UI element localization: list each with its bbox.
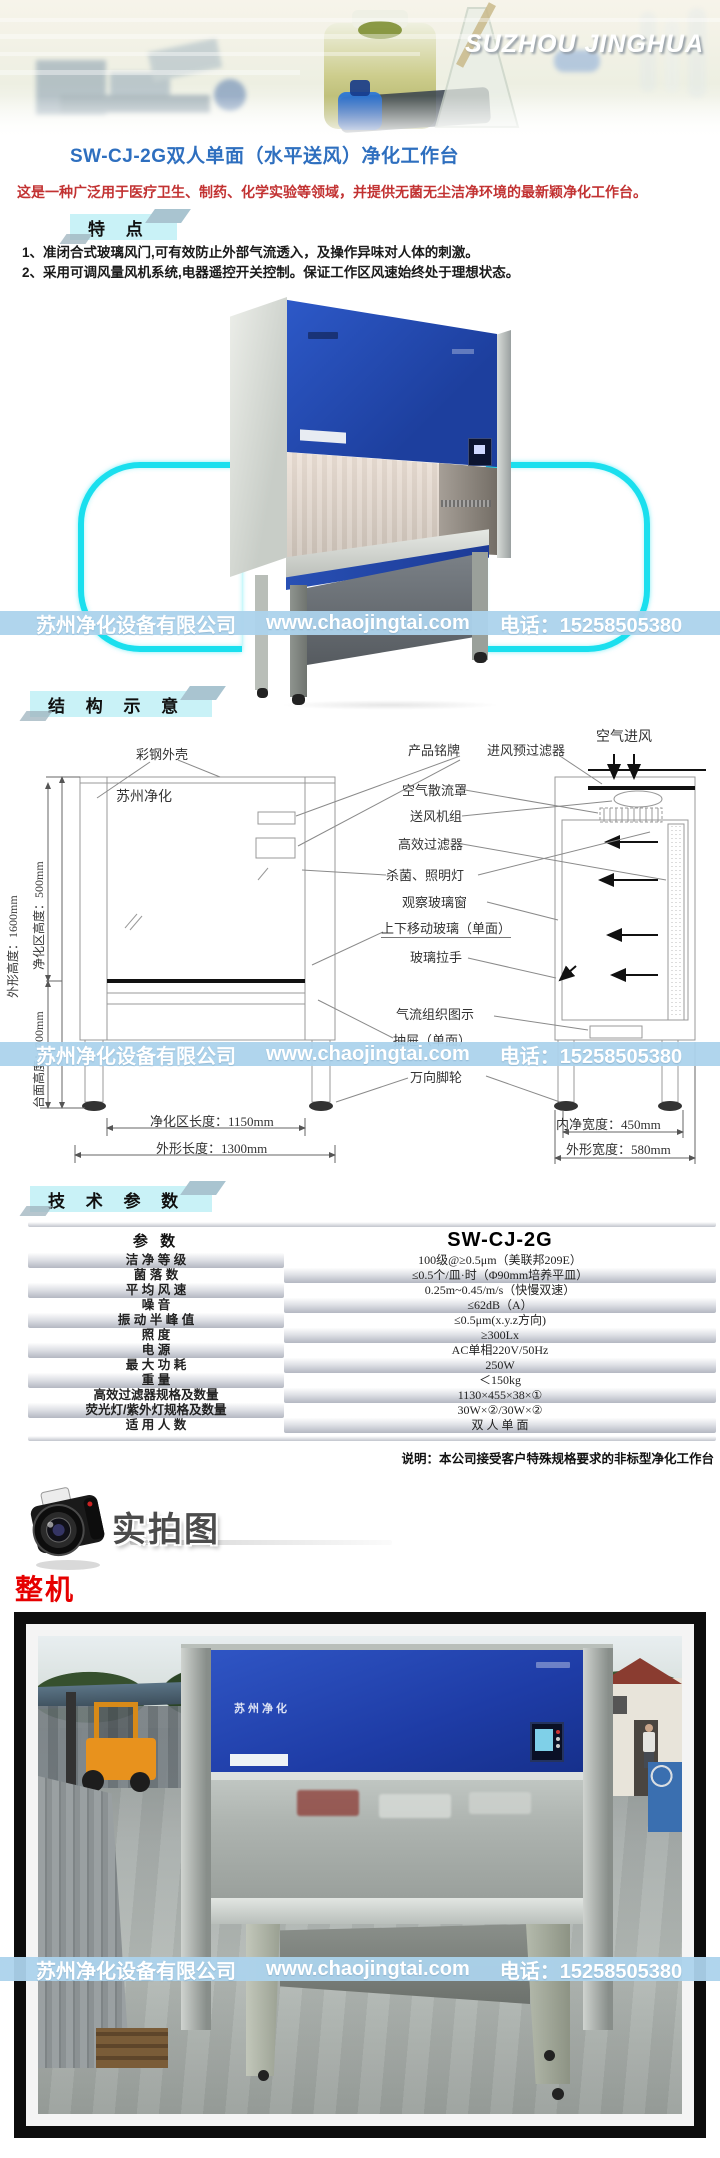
row-value: ≤62dB（A） (284, 1298, 716, 1313)
header-banner: SUZHOU JINGHUA (0, 0, 720, 140)
column-header-parameter: 参 数 (28, 1230, 284, 1251)
table-row: 菌 落 数≤0.5个/皿·时（Φ90mm培养平皿） (28, 1268, 716, 1283)
row-label: 洁 净 等 级 (28, 1253, 284, 1268)
dim-clean-height: 净化区高度：500mm (30, 861, 47, 970)
bench-left-panel (230, 297, 287, 577)
label-hepa-filter: 高效过滤器 (398, 834, 463, 853)
bench-leg-right (472, 552, 488, 660)
row-label: 照 度 (28, 1328, 284, 1343)
label-glass-handle: 玻璃拉手 (410, 947, 462, 966)
heading-accent-right (180, 686, 226, 700)
bench-control-panel (468, 438, 492, 466)
watermark-phone: 电话：15258505380 (500, 609, 682, 638)
row-label: 适 用 人 数 (28, 1418, 284, 1433)
product-description: 这是一种广泛用于医疗卫生、制药、化学实验等领域，并提供无菌无尘洁净环境的最新颖净… (17, 182, 709, 202)
control-screen (474, 445, 485, 454)
bench2-control-panel (530, 1722, 564, 1762)
row-value: 100级@≥0.5μm（美联邦209E） (284, 1253, 716, 1268)
table-bottom-band (28, 1436, 716, 1441)
row-value: ≤0.5μm(x.y.z方向) (284, 1313, 716, 1328)
table-row: 高效过滤器规格及数量1130×455×38×① (28, 1388, 716, 1403)
bench2-caster-right-upper (544, 2050, 555, 2061)
pipe-coils (648, 1762, 682, 1832)
label-blower: 送风机组 (410, 806, 462, 825)
table-header-row: 参 数 SW-CJ-2G (28, 1227, 716, 1253)
features-heading: 特 点 (70, 214, 177, 240)
label-prefilter: 进风预过滤器 (487, 740, 565, 759)
real-photo-frame: 苏州净化 (14, 1612, 706, 2138)
watermark-website: www.chaojingtai.com (266, 1958, 470, 1981)
bench-perforated-strip (441, 500, 491, 507)
row-label: 荧光灯/紫外灯规格及数量 (28, 1403, 284, 1418)
bench2-model-mark (536, 1662, 570, 1668)
row-label: 菌 落 数 (28, 1268, 284, 1283)
real-photo: 苏州净化 (38, 1636, 682, 2114)
bench2-brand-mark: 苏州净化 (234, 1700, 290, 1716)
row-label: 最 大 功 耗 (28, 1358, 284, 1373)
label-air-intake: 空气进风 (596, 726, 652, 746)
table-row: 重 量＜150kg (28, 1373, 716, 1388)
bench-leg-front-left (290, 585, 307, 697)
bench2-work-deck (211, 1898, 583, 1924)
column-header-model: SW-CJ-2G (284, 1229, 716, 1252)
row-label: 振 动 半 峰 值 (28, 1313, 284, 1328)
table-row: 振 动 半 峰 值≤0.5μm(x.y.z方向) (28, 1313, 716, 1328)
row-value: ≥300Lx (284, 1328, 716, 1343)
page-title: SW-CJ-2G双人单面（水平送风）净化工作台 (70, 141, 459, 168)
row-value: 0.25m~0.45/m/s（快慢双速） (284, 1283, 716, 1298)
watermark-bar: 苏州净化设备有限公司 www.chaojingtai.com 电话：152585… (0, 611, 720, 635)
row-value: 双 人 单 面 (284, 1418, 716, 1433)
wood-pallet (96, 2028, 168, 2068)
label-color-steel-shell: 彩钢外壳 (136, 744, 188, 763)
table-row: 平 均 风 速0.25m~0.45/m/s（快慢双速） (28, 1283, 716, 1298)
forklift-wheel-rear (130, 1772, 150, 1792)
table-row: 洁 净 等 级100级@≥0.5μm（美联邦209E） (28, 1253, 716, 1268)
product-page: SUZHOU JINGHUA SW-CJ-2G双人单面（水平送风）净化工作台 这… (0, 0, 720, 2158)
dim-overall-length: 外形长度：1300mm (156, 1138, 267, 1157)
bench2-caster-left (258, 2070, 269, 2081)
heading-accent-right (145, 209, 191, 223)
structure-diagram: 彩钢外壳 苏州净化 产品铭牌 进风预过滤器 空气进风 空气散流罩 送风机组 高效… (0, 720, 720, 1200)
specs-heading-text: 技 术 参 数 (48, 1187, 186, 1212)
row-value: ＜150kg (284, 1373, 716, 1388)
bench-logo-mark (308, 332, 338, 339)
row-label: 电 源 (28, 1343, 284, 1358)
specs-note: 说明：本公司接受客户特殊规格要求的非标型净化工作台 (28, 1448, 716, 1467)
table-row: 荧光灯/紫外灯规格及数量30W×②/30W×② (28, 1403, 716, 1418)
table-row: 电 源AC单相220V/50Hz (28, 1343, 716, 1358)
row-value: 250W (284, 1358, 716, 1373)
watermark-company: 苏州净化设备有限公司 (36, 1040, 236, 1069)
label-airflow-pattern: 气流组织图示 (396, 1004, 474, 1023)
feature-item-1: 1、准闭合式玻璃风门,可有效防止外部气流透入，及操作异味对人体的刺激。 (22, 241, 712, 261)
bench-model-mark (452, 349, 474, 354)
label-lamp: 杀菌、照明灯 (386, 865, 464, 884)
heading-accent-left (19, 1206, 52, 1216)
row-value: 1130×455×38×① (284, 1388, 716, 1403)
row-label: 高效过滤器规格及数量 (28, 1388, 284, 1403)
watermark-phone: 电话：15258505380 (500, 1040, 682, 1069)
dim-inner-width: 内净宽度：450mm (556, 1114, 661, 1133)
table-row: 照 度≥300Lx (28, 1328, 716, 1343)
caster-left-back (257, 688, 268, 698)
watermark-company: 苏州净化设备有限公司 (36, 609, 236, 638)
dim-overall-height: 外形高度：1600mm (4, 895, 21, 998)
watermark-bar: 苏州净化设备有限公司 www.chaojingtai.com 电话：152585… (0, 1042, 720, 1066)
bench-shadow (280, 700, 500, 710)
camera-icon (18, 1478, 118, 1570)
bench2-glass (211, 1772, 583, 1898)
photos-heading: 实拍图 (112, 1502, 220, 1551)
label-brand-mark: 苏州净化 (116, 786, 172, 806)
lab-glassware-image (0, 0, 720, 140)
dim-clean-length: 净化区长度：1150mm (150, 1111, 274, 1130)
bench2-sticker (230, 1754, 288, 1766)
label-nameplate: 产品铭牌 (408, 740, 460, 759)
row-value: AC单相220V/50Hz (284, 1343, 716, 1358)
row-label: 重 量 (28, 1373, 284, 1388)
whole-machine-label: 整机 (15, 1568, 75, 1608)
brand-logo-text: SUZHOU JINGHUA (465, 30, 704, 59)
bench2-caster-right-lower (552, 2088, 564, 2100)
building-window (613, 1696, 627, 1714)
watermark-website: www.chaojingtai.com (266, 612, 470, 635)
table-row: 噪 音≤62dB（A） (28, 1298, 716, 1313)
bench-right-column (497, 330, 511, 558)
structure-heading-text: 结 构 示 意 (48, 692, 186, 717)
row-label: 噪 音 (28, 1298, 284, 1313)
specs-table: 参 数 SW-CJ-2G 洁 净 等 级100级@≥0.5μm（美联邦209E）… (28, 1222, 716, 1467)
feature-item-2: 2、采用可调风量风机系统,电器遥控开关控制。保证工作区风速始终处于理想状态。 (22, 261, 712, 281)
table-row: 适 用 人 数双 人 单 面 (28, 1418, 716, 1433)
watermark-website: www.chaojingtai.com (266, 1043, 470, 1066)
label-observation-window: 观察玻璃窗 (402, 892, 467, 911)
specs-heading: 技 术 参 数 (30, 1186, 212, 1212)
row-value: 30W×②/30W×② (284, 1403, 716, 1418)
row-value: ≤0.5个/皿·时（Φ90mm培养平皿） (284, 1268, 716, 1283)
structure-heading: 结 构 示 意 (30, 691, 212, 717)
watermark-bar: 苏州净化设备有限公司 www.chaojingtai.com 电话：152585… (0, 1957, 720, 1981)
features-heading-text: 特 点 (88, 215, 151, 240)
row-label: 平 均 风 速 (28, 1283, 284, 1298)
table-row: 最 大 功 耗250W (28, 1358, 716, 1373)
caster-right (474, 652, 487, 663)
dim-overall-width: 外形宽度：580mm (566, 1139, 671, 1158)
label-diffuser: 空气散流罩 (402, 780, 467, 799)
label-moving-glass: 上下移动玻璃（单面） (381, 918, 511, 938)
watermark-phone: 电话：15258505380 (500, 1955, 682, 1984)
watermark-company: 苏州净化设备有限公司 (36, 1955, 236, 1984)
label-caster: 万向脚轮 (410, 1067, 462, 1086)
